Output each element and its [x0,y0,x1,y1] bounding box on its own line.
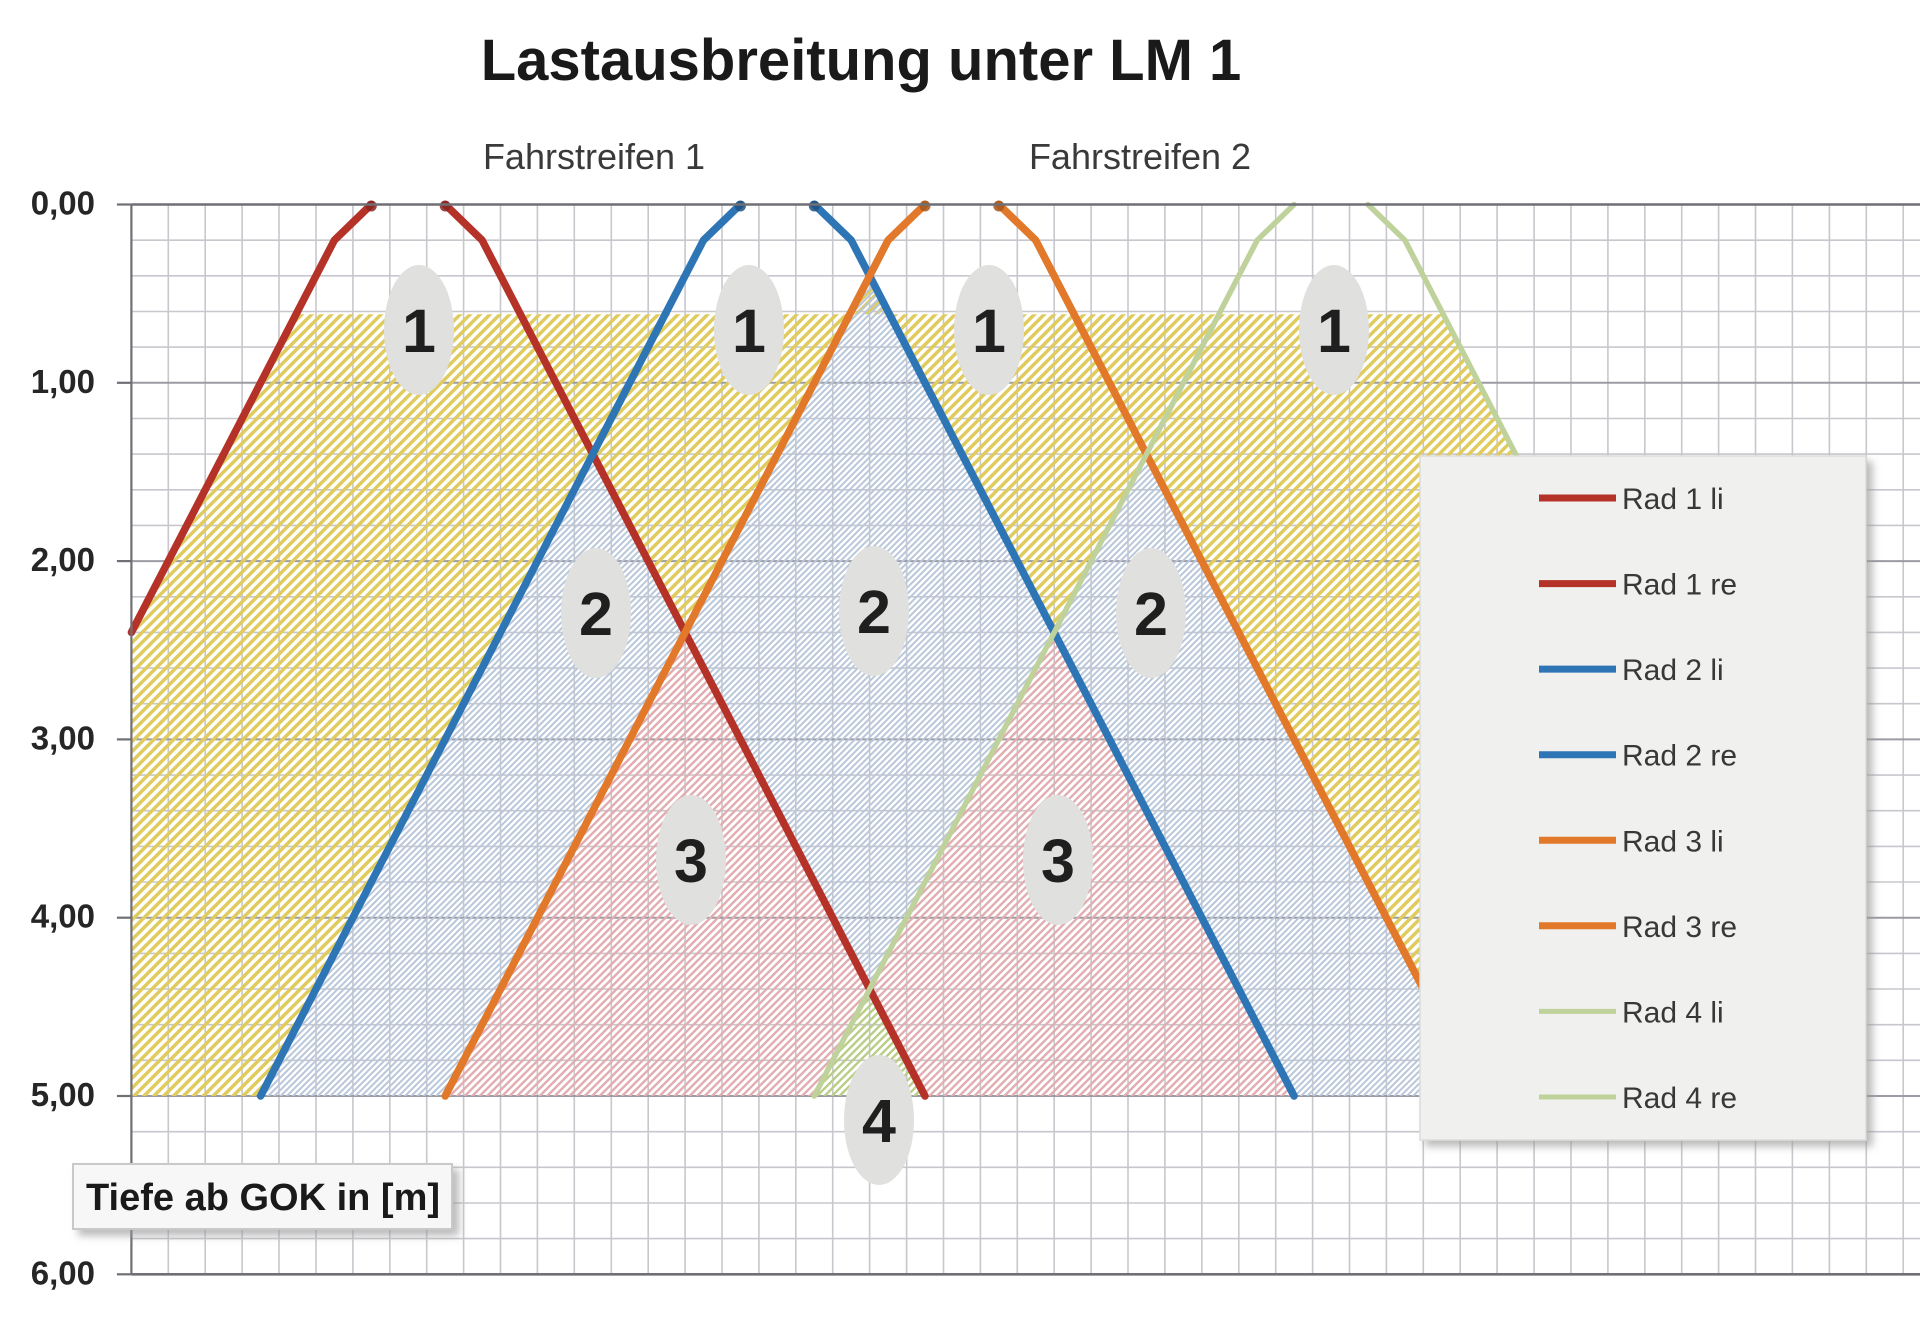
svg-text:2: 2 [579,580,613,648]
svg-text:Fahrstreifen 2: Fahrstreifen 2 [1029,136,1251,177]
svg-text:0,00: 0,00 [31,185,95,222]
svg-text:Rad 2 re: Rad 2 re [1622,740,1737,773]
svg-text:Lastausbreitung unter LM 1: Lastausbreitung unter LM 1 [481,28,1242,93]
svg-text:5,00: 5,00 [31,1076,95,1113]
svg-text:4: 4 [862,1087,896,1155]
svg-text:1: 1 [1317,297,1351,365]
svg-text:Rad 2 li: Rad 2 li [1622,654,1724,687]
svg-text:1: 1 [732,297,766,365]
svg-text:1: 1 [972,297,1006,365]
svg-text:4,00: 4,00 [31,898,95,935]
svg-text:3: 3 [1041,827,1075,895]
svg-text:2: 2 [1134,580,1168,648]
svg-text:Fahrstreifen 1: Fahrstreifen 1 [483,136,705,177]
svg-text:Rad 3 li: Rad 3 li [1622,825,1724,858]
svg-text:1,00: 1,00 [31,363,95,400]
svg-text:3,00: 3,00 [31,719,95,756]
svg-text:Tiefe ab GOK in [m]: Tiefe ab GOK in [m] [86,1177,440,1219]
svg-text:6,00: 6,00 [31,1254,95,1291]
svg-text:Rad 4 re: Rad 4 re [1622,1082,1737,1115]
svg-text:Rad 4 li: Rad 4 li [1622,996,1724,1029]
svg-text:3: 3 [674,827,708,895]
svg-text:1: 1 [402,297,436,365]
svg-text:Rad 1 re: Rad 1 re [1622,569,1737,602]
svg-text:Rad 3 re: Rad 3 re [1622,911,1737,944]
svg-text:2: 2 [857,578,891,646]
svg-text:Rad 1 li: Rad 1 li [1622,483,1724,516]
svg-text:2,00: 2,00 [31,541,95,578]
